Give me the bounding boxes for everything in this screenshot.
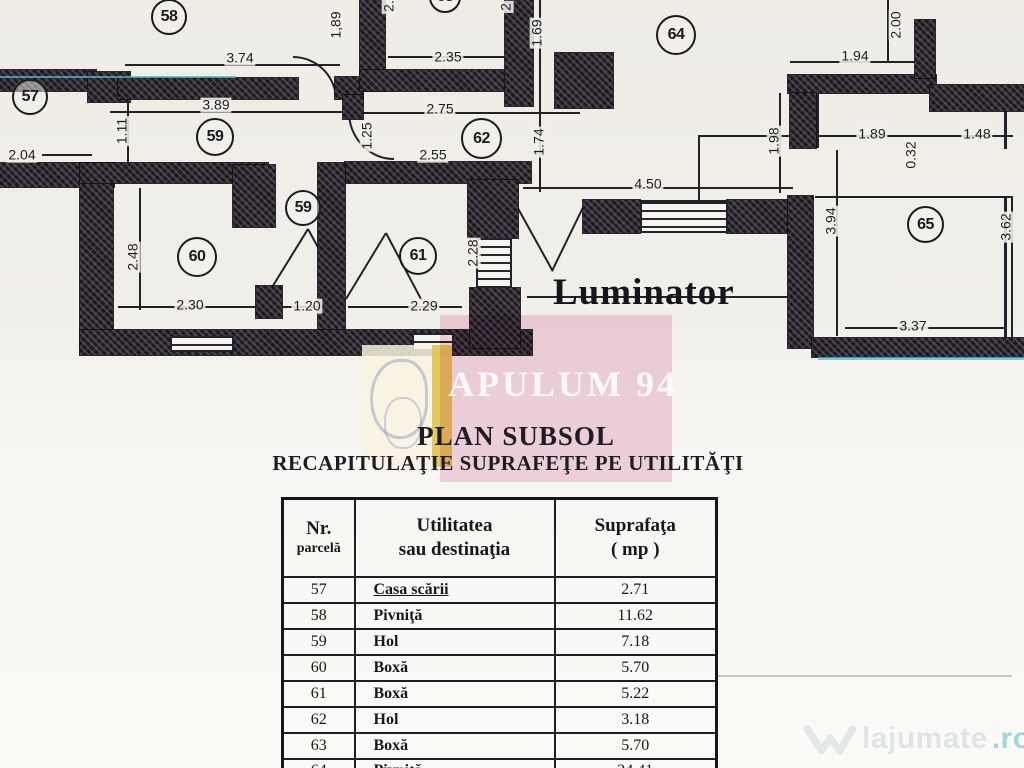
door-arc — [293, 56, 337, 100]
window-symbol — [640, 202, 728, 233]
header-suprafata-line1: Suprafaţa — [556, 514, 716, 538]
apulum-watermark-text: APULUM 94 — [448, 363, 678, 405]
wall — [915, 20, 935, 78]
wall — [256, 286, 282, 318]
wall — [468, 180, 518, 238]
dimension-line — [815, 196, 1013, 198]
dim-label: 2.30 — [174, 298, 205, 313]
cell-suprafata: 2.71 — [555, 577, 717, 603]
wall — [788, 75, 936, 93]
dim-label: 2. — [382, 0, 397, 14]
dim-label: 1,89 — [329, 9, 344, 40]
dim-label: 3.94 — [824, 205, 839, 236]
cell-utilitate: Boxă — [355, 655, 555, 681]
table-row: 64Pivniţă24.41 — [283, 759, 717, 768]
cell-utilitate: Boxă — [355, 681, 555, 707]
wall — [583, 200, 640, 233]
cell-suprafata: 24.41 — [555, 759, 717, 768]
wall — [790, 93, 816, 148]
dim-label: 2.29 — [408, 299, 439, 314]
dim-label: 1.89 — [856, 127, 887, 142]
wall — [505, 0, 533, 106]
cell-parcel-nr: 58 — [283, 603, 355, 629]
table-row: 59Hol7.18 — [283, 629, 717, 655]
cell-parcel-nr: 64 — [283, 759, 355, 768]
cell-utilitate: Hol — [355, 707, 555, 733]
table-row: 63Boxă5.70 — [283, 733, 717, 759]
table-row: 58Pivniţă11.62 — [283, 603, 717, 629]
cell-suprafata: 5.70 — [555, 733, 717, 759]
page-title: PLAN SUBSOL — [417, 421, 615, 452]
lajumate-tld: .ro — [992, 722, 1024, 756]
wall — [233, 165, 275, 227]
dim-label: 2.00 — [889, 9, 904, 40]
dim-label: 2.48 — [126, 241, 141, 272]
wall — [930, 85, 1024, 111]
scanned-floorplan-document: 575863645962596061653.743.892.041.111,89… — [0, 0, 1024, 768]
header-nr: Nr. parcelă — [283, 499, 355, 577]
cell-utilitate: Hol — [355, 629, 555, 655]
table-row: 61Boxă5.22 — [283, 681, 717, 707]
dim-label: 1.25 — [360, 120, 375, 151]
table-row: 62Hol3.18 — [283, 707, 717, 733]
wall — [318, 163, 345, 349]
room-number-62: 62 — [461, 118, 502, 159]
lajumate-text: lajumate — [862, 722, 988, 756]
dim-label: 2.28 — [466, 237, 481, 268]
header-nr-line2: parcelă — [284, 541, 354, 558]
door-leaf-line — [345, 233, 387, 300]
header-utilitatea: Utilitatea sau destinaţia — [355, 499, 555, 577]
luminator-label: Luminator — [553, 271, 735, 314]
room-number-58: 58 — [151, 0, 187, 35]
dim-label: 1.69 — [530, 17, 545, 48]
scan-artifact-cyan-line — [0, 76, 236, 78]
dim-label: 2.55 — [417, 148, 448, 163]
table-row: 60Boxă5.70 — [283, 655, 717, 681]
heart-logo-icon — [800, 716, 858, 762]
dimension-line — [348, 306, 462, 308]
window-symbol — [170, 336, 234, 352]
dim-label: 3.74 — [224, 51, 255, 66]
cell-utilitate: Casa scării — [355, 577, 555, 603]
cell-utilitate: Boxă — [355, 733, 555, 759]
dim-label: 4.50 — [632, 177, 663, 192]
dimension-line — [816, 93, 819, 148]
cell-parcel-nr: 63 — [283, 733, 355, 759]
room-number-57: 57 — [12, 79, 48, 115]
scan-artifact-line — [716, 675, 1012, 677]
dim-label: 2.75 — [424, 102, 455, 117]
dim-label: 3.89 — [200, 98, 231, 113]
cell-parcel-nr: 61 — [283, 681, 355, 707]
cell-parcel-nr: 59 — [283, 629, 355, 655]
lajumate-watermark: lajumate.ro — [800, 716, 1024, 762]
room-number-59: 59 — [285, 190, 321, 226]
table-row: 57Casa scării2.71 — [283, 577, 717, 603]
room-number-63: 63 — [429, 0, 461, 13]
door-leaf-line — [551, 207, 584, 272]
dim-label: 1.48 — [961, 127, 992, 142]
dim-label: 3.62 — [999, 211, 1014, 242]
wall — [555, 53, 613, 108]
header-utilitatea-line1: Utilitatea — [356, 514, 554, 538]
dim-label: 1.94 — [839, 49, 870, 64]
room-number-64: 64 — [656, 15, 696, 55]
dim-label: 0.32 — [904, 139, 919, 170]
dim-label: 1.11 — [115, 116, 130, 146]
page-subtitle: RECAPITULAŢIE SUPRAFEŢE PE UTILITĂŢI — [272, 451, 743, 476]
cell-utilitate: Pivniţă — [355, 603, 555, 629]
room-number-60: 60 — [177, 237, 217, 277]
wall — [80, 163, 113, 349]
cell-parcel-nr: 57 — [283, 577, 355, 603]
area-table: Nr. parcelă Utilitatea sau destinaţia Su… — [281, 497, 718, 768]
scan-artifact-cyan-line — [818, 357, 1024, 360]
room-number-61: 61 — [399, 237, 437, 275]
window-symbol — [476, 238, 512, 288]
cell-parcel-nr: 60 — [283, 655, 355, 681]
dim-label: 3.37 — [897, 319, 928, 334]
cell-suprafata: 7.18 — [555, 629, 717, 655]
header-suprafata-line2: ( mp ) — [556, 538, 716, 562]
header-nr-line1: Nr. — [284, 517, 354, 541]
dim-label: 2.35 — [432, 50, 463, 65]
dim-label: 2 — [499, 1, 514, 13]
door-leaf-line — [514, 203, 554, 272]
cell-parcel-nr: 62 — [283, 707, 355, 733]
cell-suprafata: 5.70 — [555, 655, 717, 681]
cell-suprafata: 3.18 — [555, 707, 717, 733]
dim-label: 2.04 — [6, 148, 37, 163]
dimension-line — [42, 154, 92, 156]
cell-suprafata: 5.22 — [555, 681, 717, 707]
room-number-65: 65 — [907, 206, 944, 243]
wall — [788, 196, 813, 348]
wall — [343, 95, 363, 119]
cell-utilitate: Pivniţă — [355, 759, 555, 768]
dim-label: 1.98 — [767, 125, 782, 156]
cell-suprafata: 11.62 — [555, 603, 717, 629]
header-suprafata: Suprafaţa ( mp ) — [555, 499, 717, 577]
table-header-row: Nr. parcelă Utilitatea sau destinaţia Su… — [283, 499, 717, 577]
wall — [812, 338, 1024, 357]
dim-label: 1.74 — [532, 126, 547, 157]
dim-label: 1.20 — [291, 299, 322, 314]
room-number-59: 59 — [196, 118, 234, 156]
dimension-line — [698, 135, 700, 201]
header-utilitatea-line2: sau destinaţia — [356, 538, 554, 562]
dimension-line — [1004, 111, 1007, 149]
dimension-line — [836, 150, 838, 336]
